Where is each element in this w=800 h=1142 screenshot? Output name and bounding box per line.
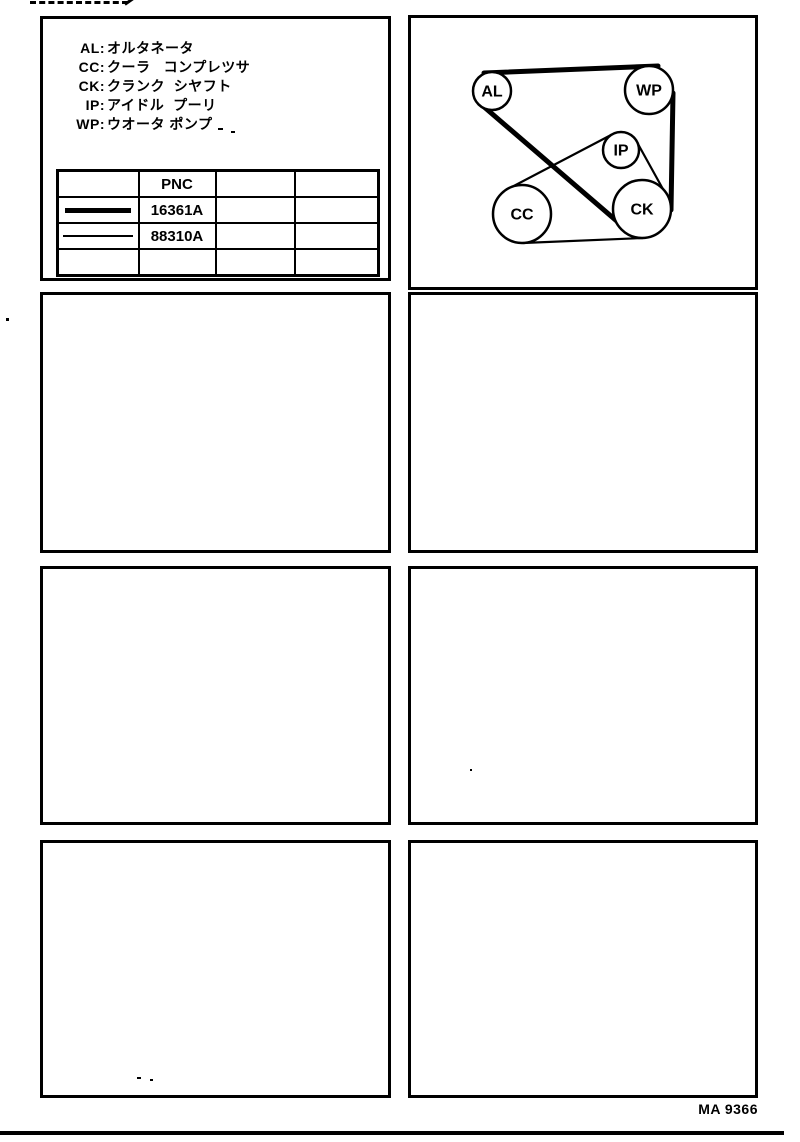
page-bottom-rule — [0, 1131, 784, 1135]
legend-abbr: IP: — [67, 96, 105, 115]
scan-noise-dot — [470, 769, 472, 771]
pnc-table-cell — [295, 249, 379, 276]
legend-entry-wp: WP: ウオータ ポンプ — [67, 115, 250, 134]
belt-line-sample-cell — [58, 197, 139, 223]
pnc-table-cell — [216, 197, 295, 223]
legend-entry-ip: IP: アイドル プーリ — [67, 96, 250, 115]
legend-abbr: AL: — [67, 39, 105, 58]
figure-code: MA 9366 — [640, 1101, 758, 1117]
catalog-page: AL: オルタネータ CC: クーラ コンプレツサ CK: クランク シヤフト … — [0, 0, 800, 1142]
thick-belt-line-sample — [65, 208, 131, 213]
legend-meaning: オルタネータ — [107, 39, 194, 58]
scan-noise-dot — [137, 1077, 141, 1079]
thin-belt-line-sample — [63, 235, 133, 237]
pnc-column-header: PNC — [139, 171, 216, 198]
pulley-ip-label: IP — [613, 143, 628, 160]
pnc-value: 88310A — [139, 223, 216, 249]
scan-noise-dot — [6, 318, 9, 321]
pnc-table-cell — [216, 223, 295, 249]
pulley-ck-label: CK — [630, 202, 654, 219]
pnc-table-cell — [216, 249, 295, 276]
empty-panel-5 — [40, 840, 391, 1098]
pnc-table-cell — [295, 223, 379, 249]
pnc-value: 16361A — [139, 197, 216, 223]
pnc-table: PNC 16361A 88310A — [56, 169, 380, 277]
pnc-table-empty-row — [58, 249, 379, 276]
scan-artifact-tick — [124, 0, 134, 6]
scan-noise-dot — [218, 128, 223, 130]
legend-abbr: CK: — [67, 77, 105, 96]
pnc-table-cell — [216, 171, 295, 198]
pnc-table-header-row: PNC — [58, 171, 379, 198]
legend-entry-al: AL: オルタネータ — [67, 39, 250, 58]
empty-panel-3 — [40, 566, 391, 825]
belt-diagram-svg: ALWPIPCCCK — [411, 18, 755, 287]
legend-abbr: CC: — [67, 58, 105, 77]
pnc-table-cell — [58, 249, 139, 276]
pnc-table-cell — [139, 249, 216, 276]
belt-legend: AL: オルタネータ CC: クーラ コンプレツサ CK: クランク シヤフト … — [67, 39, 250, 134]
legend-entry-cc: CC: クーラ コンプレツサ — [67, 58, 250, 77]
pulley-wp-label: WP — [636, 83, 662, 100]
empty-panel-6 — [408, 840, 758, 1098]
legend-entry-ck: CK: クランク シヤフト — [67, 77, 250, 96]
belt-88310a-cc-ip-segment — [506, 135, 611, 190]
pnc-table-cell — [295, 171, 379, 198]
scan-noise-dot — [231, 131, 235, 133]
legend-abbr: WP: — [67, 115, 105, 134]
empty-panel-1 — [40, 292, 391, 553]
legend-meaning: クランク シヤフト — [107, 77, 232, 96]
belt-diagram-panel: ALWPIPCCCK — [408, 15, 758, 290]
pnc-table-row-88310a: 88310A — [58, 223, 379, 249]
pnc-table-cell — [295, 197, 379, 223]
legend-meaning: アイドル プーリ — [107, 96, 217, 115]
belt-line-sample-cell — [58, 223, 139, 249]
pnc-table-row-16361a: 16361A — [58, 197, 379, 223]
belt-88310a-ck-cc-segment — [523, 238, 643, 243]
scan-noise-dot — [150, 1079, 153, 1081]
pulley-cc-label: CC — [510, 207, 534, 224]
belt-16361a-right-segment — [671, 93, 673, 210]
empty-panel-2 — [408, 292, 758, 553]
legend-panel: AL: オルタネータ CC: クーラ コンプレツサ CK: クランク シヤフト … — [40, 16, 391, 281]
legend-meaning: ウオータ ポンプ — [107, 115, 212, 134]
pnc-table-cell — [58, 171, 139, 198]
empty-panel-4 — [408, 566, 758, 825]
pulley-al-label: AL — [481, 84, 503, 101]
scan-artifact-dashes — [30, 1, 128, 4]
legend-meaning: クーラ コンプレツサ — [107, 58, 250, 77]
